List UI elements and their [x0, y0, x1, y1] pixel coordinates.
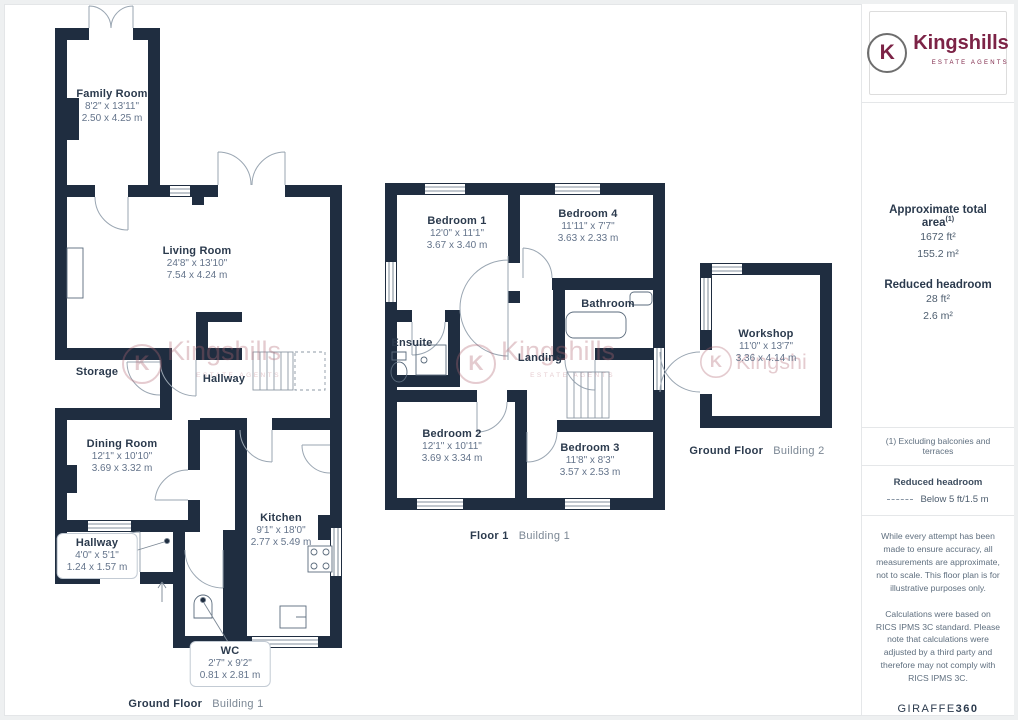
room-label-hallway: Hallway: [203, 373, 245, 386]
logo-section: K KingshillsESTATE AGENTS: [862, 4, 1014, 103]
logo-tagline: ESTATE AGENTS: [913, 54, 1009, 73]
total-area-ft: 1672 ft²: [920, 229, 956, 246]
footnote-section: (1) Excluding balconies and terraces: [862, 428, 1014, 466]
caption-floor1-building1: Floor 1Building 1: [470, 526, 570, 544]
logo-name: Kingshills: [913, 32, 1009, 54]
legend-title: Reduced headroom: [894, 477, 983, 488]
room-label-bedroom3: Bedroom 3 11'8" x 8'3" 3.57 x 2.53 m: [560, 442, 621, 479]
room-label-bathroom: Bathroom: [581, 298, 635, 311]
legend-section: Reduced headroom Below 5 ft/1.5 m: [862, 466, 1014, 516]
room-label-family-room: Family Room 8'2" x 13'11" 2.50 x 4.25 m: [76, 88, 147, 125]
caption-ground-floor-building1: Ground FloorBuilding 1: [128, 694, 263, 712]
info-sidebar: K KingshillsESTATE AGENTS Approximate to…: [861, 4, 1014, 716]
reduced-headroom-title: Reduced headroom: [884, 279, 991, 291]
room-label-bedroom1: Bedroom 1 12'0" x 11'1" 3.67 x 3.40 m: [427, 215, 488, 252]
bathtub: [566, 312, 626, 338]
fireplace: [67, 248, 83, 298]
disclaimer-section: While every attempt has been made to ens…: [862, 516, 1014, 716]
reduced-headroom-dashed-area: [295, 352, 325, 390]
logo-k-circle: K: [867, 33, 907, 73]
wall-group: [55, 28, 832, 648]
brand-logo: K KingshillsESTATE AGENTS: [869, 11, 1007, 95]
caption-ground-floor-building2: Ground FloorBuilding 2: [689, 441, 824, 459]
room-label-bedroom2: Bedroom 2 12'1" x 10'11" 3.69 x 3.34 m: [422, 428, 483, 465]
room-label-wc-callout: WC 2'7" x 9'2" 0.81 x 2.81 m: [190, 641, 271, 687]
giraffe360-credit: GIRAFFE360: [897, 703, 978, 715]
room-label-ensuite: Ensuite: [391, 337, 432, 350]
legend-value: Below 5 ft/1.5 m: [920, 494, 988, 505]
dashed-line-sample: [887, 499, 913, 500]
room-label-storage: Storage: [76, 366, 118, 379]
total-area-m: 155.2 m²: [917, 246, 958, 263]
room-label-workshop: Workshop 11'0" x 13'7" 3.36 x 4.14 m: [736, 328, 797, 365]
room-label-kitchen: Kitchen 9'1" x 18'0" 2.77 x 5.49 m: [251, 512, 312, 549]
room-label-hallway2-callout: Hallway 4'0" x 5'1" 1.24 x 1.57 m: [57, 533, 138, 579]
reduced-headroom-ft: 28 ft²: [926, 291, 950, 308]
entrance-arrow: [158, 582, 166, 602]
area-summary-section: Approximate total area(1) 1672 ft² 155.2…: [862, 103, 1014, 428]
total-area-title: Approximate total area(1): [875, 204, 1001, 229]
room-label-landing: Landing: [518, 352, 562, 365]
room-label-dining-room: Dining Room 12'1" x 10'10" 3.69 x 3.32 m: [87, 438, 158, 475]
reduced-headroom-m: 2.6 m²: [923, 308, 953, 325]
floorplan-page: K KingshillsESTATE AGENTS K KingshillsES…: [0, 0, 1018, 720]
disclaimer-1: While every attempt has been made to ens…: [875, 530, 1001, 594]
room-label-living-room: Living Room 24'8" x 13'10" 7.54 x 4.24 m: [163, 245, 232, 282]
room-label-bedroom4: Bedroom 4 11'11" x 7'7" 3.63 x 2.33 m: [558, 208, 619, 245]
disclaimer-2: Calculations were based on RICS IPMS 3C …: [875, 608, 1001, 685]
footnote-text: (1) Excluding balconies and terraces: [875, 436, 1001, 456]
